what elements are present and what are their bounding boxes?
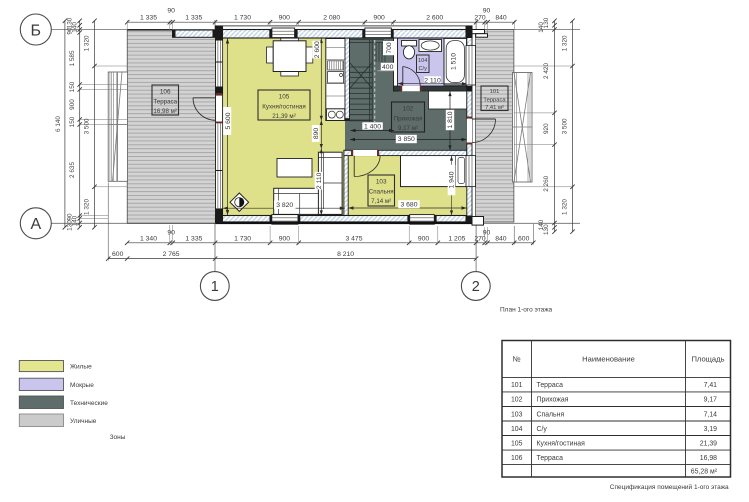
svg-text:900: 900 (69, 99, 76, 110)
svg-text:106: 106 (160, 88, 171, 95)
svg-text:1 940: 1 940 (449, 171, 456, 188)
svg-text:Наименование: Наименование (582, 355, 635, 364)
svg-text:2 635: 2 635 (69, 162, 76, 178)
svg-text:101: 101 (490, 89, 500, 95)
svg-text:3 475: 3 475 (345, 235, 362, 242)
svg-text:103: 103 (511, 411, 523, 418)
svg-text:2 110: 2 110 (316, 172, 323, 189)
svg-text:130: 130 (543, 224, 550, 235)
svg-text:90: 90 (167, 8, 175, 15)
svg-text:101: 101 (511, 382, 523, 389)
svg-text:Терраса: Терраса (483, 97, 506, 103)
svg-text:900: 900 (373, 15, 385, 22)
svg-text:2 080: 2 080 (323, 15, 340, 22)
svg-text:1 810: 1 810 (447, 111, 454, 128)
svg-text:2 260: 2 260 (543, 175, 550, 191)
svg-text:1 320: 1 320 (84, 35, 91, 51)
svg-text:21,39: 21,39 (700, 440, 717, 447)
svg-text:7,14 м²: 7,14 м² (371, 198, 391, 205)
svg-text:Жилые: Жилые (70, 364, 92, 371)
svg-text:600: 600 (112, 251, 124, 258)
svg-text:№: № (513, 355, 521, 364)
svg-text:90: 90 (167, 230, 175, 237)
svg-text:1 320: 1 320 (561, 199, 568, 215)
svg-text:1 335: 1 335 (185, 235, 202, 242)
svg-text:1 510: 1 510 (450, 53, 457, 70)
svg-text:130: 130 (67, 220, 74, 231)
svg-text:А: А (30, 216, 41, 233)
svg-text:1 400: 1 400 (364, 123, 381, 130)
svg-text:План 1-ого этажа: План 1-ого этажа (500, 306, 553, 313)
svg-text:Спальня: Спальня (369, 188, 394, 195)
svg-text:1 730: 1 730 (234, 235, 251, 242)
svg-text:3 820: 3 820 (276, 202, 293, 209)
svg-text:Площадь: Площадь (691, 355, 724, 364)
svg-text:105: 105 (511, 440, 523, 447)
svg-text:102: 102 (511, 397, 523, 404)
svg-text:65,28 м²: 65,28 м² (691, 469, 718, 476)
svg-text:3 500: 3 500 (561, 118, 568, 134)
svg-text:Спецификация помещений 1-ого э: Спецификация помещений 1-ого этажа (610, 483, 729, 491)
svg-text:7,41: 7,41 (704, 382, 718, 389)
svg-text:105: 105 (279, 93, 290, 100)
svg-text:21,39 м²: 21,39 м² (272, 113, 296, 120)
svg-text:2 600: 2 600 (426, 15, 443, 22)
svg-text:920: 920 (543, 123, 550, 134)
svg-text:150: 150 (69, 81, 76, 92)
svg-text:2 110: 2 110 (424, 77, 441, 84)
svg-text:1 335: 1 335 (140, 15, 157, 22)
svg-text:900: 900 (279, 235, 291, 242)
svg-text:Терраса: Терраса (537, 455, 564, 462)
svg-text:1 585: 1 585 (69, 50, 76, 66)
svg-text:104: 104 (511, 426, 523, 433)
svg-text:Б: Б (31, 22, 42, 39)
svg-text:2 420: 2 420 (543, 63, 550, 79)
svg-text:Мокрые: Мокрые (70, 382, 94, 389)
svg-text:1: 1 (211, 279, 219, 295)
svg-text:3 680: 3 680 (400, 202, 417, 209)
svg-text:1 335: 1 335 (185, 15, 202, 22)
svg-text:16,98: 16,98 (700, 455, 717, 462)
svg-text:Спальня: Спальня (537, 411, 565, 418)
svg-text:1 205: 1 205 (448, 235, 465, 242)
svg-text:Зоны: Зоны (110, 434, 126, 441)
svg-text:Терраса: Терраса (537, 382, 564, 389)
svg-text:103: 103 (376, 178, 387, 185)
svg-text:840: 840 (495, 15, 507, 22)
svg-text:1 320: 1 320 (84, 199, 91, 215)
svg-text:Уличные: Уличные (70, 418, 97, 425)
svg-text:270: 270 (474, 15, 486, 22)
svg-text:Кухня/гостиная: Кухня/гостиная (262, 103, 305, 110)
svg-text:9,17 м²: 9,17 м² (398, 125, 418, 132)
svg-text:С/у: С/у (419, 66, 428, 72)
svg-text:6 140: 6 140 (55, 116, 62, 132)
svg-text:Прихожая: Прихожая (537, 397, 569, 404)
svg-text:3 850: 3 850 (398, 136, 415, 143)
svg-text:104: 104 (418, 58, 427, 64)
svg-text:102: 102 (403, 105, 414, 112)
svg-text:150: 150 (69, 116, 76, 127)
svg-text:600: 600 (518, 235, 530, 242)
svg-text:90: 90 (483, 8, 491, 15)
svg-text:840: 840 (495, 235, 507, 242)
svg-text:2 765: 2 765 (163, 251, 180, 258)
svg-text:7,41 м²: 7,41 м² (485, 105, 504, 111)
svg-text:16,98 м²: 16,98 м² (153, 108, 177, 115)
svg-text:3 500: 3 500 (84, 118, 91, 134)
svg-text:106: 106 (511, 455, 523, 462)
svg-text:С/у: С/у (537, 426, 548, 433)
svg-text:400: 400 (382, 64, 394, 71)
svg-text:2 600: 2 600 (314, 41, 321, 58)
svg-text:7,14: 7,14 (704, 411, 718, 418)
svg-text:700: 700 (386, 42, 393, 54)
svg-text:Терраса: Терраса (153, 98, 177, 105)
svg-text:Технические: Технические (70, 400, 108, 407)
svg-text:5 600: 5 600 (225, 112, 232, 129)
svg-text:1 730: 1 730 (234, 15, 251, 22)
svg-text:140: 140 (538, 22, 545, 33)
svg-text:1 340: 1 340 (140, 235, 157, 242)
svg-text:1 320: 1 320 (561, 35, 568, 51)
svg-text:900: 900 (279, 15, 291, 22)
svg-text:90: 90 (483, 230, 491, 237)
svg-text:2: 2 (472, 279, 480, 295)
svg-text:3,19: 3,19 (704, 426, 718, 433)
svg-text:90: 90 (67, 27, 74, 35)
svg-text:Кухня/гостиная: Кухня/гостиная (537, 440, 586, 447)
svg-text:9,17: 9,17 (704, 397, 718, 404)
svg-text:8 210: 8 210 (337, 251, 354, 258)
svg-text:Прихожая: Прихожая (394, 115, 423, 122)
svg-text:890: 890 (313, 128, 320, 140)
svg-text:900: 900 (418, 235, 430, 242)
